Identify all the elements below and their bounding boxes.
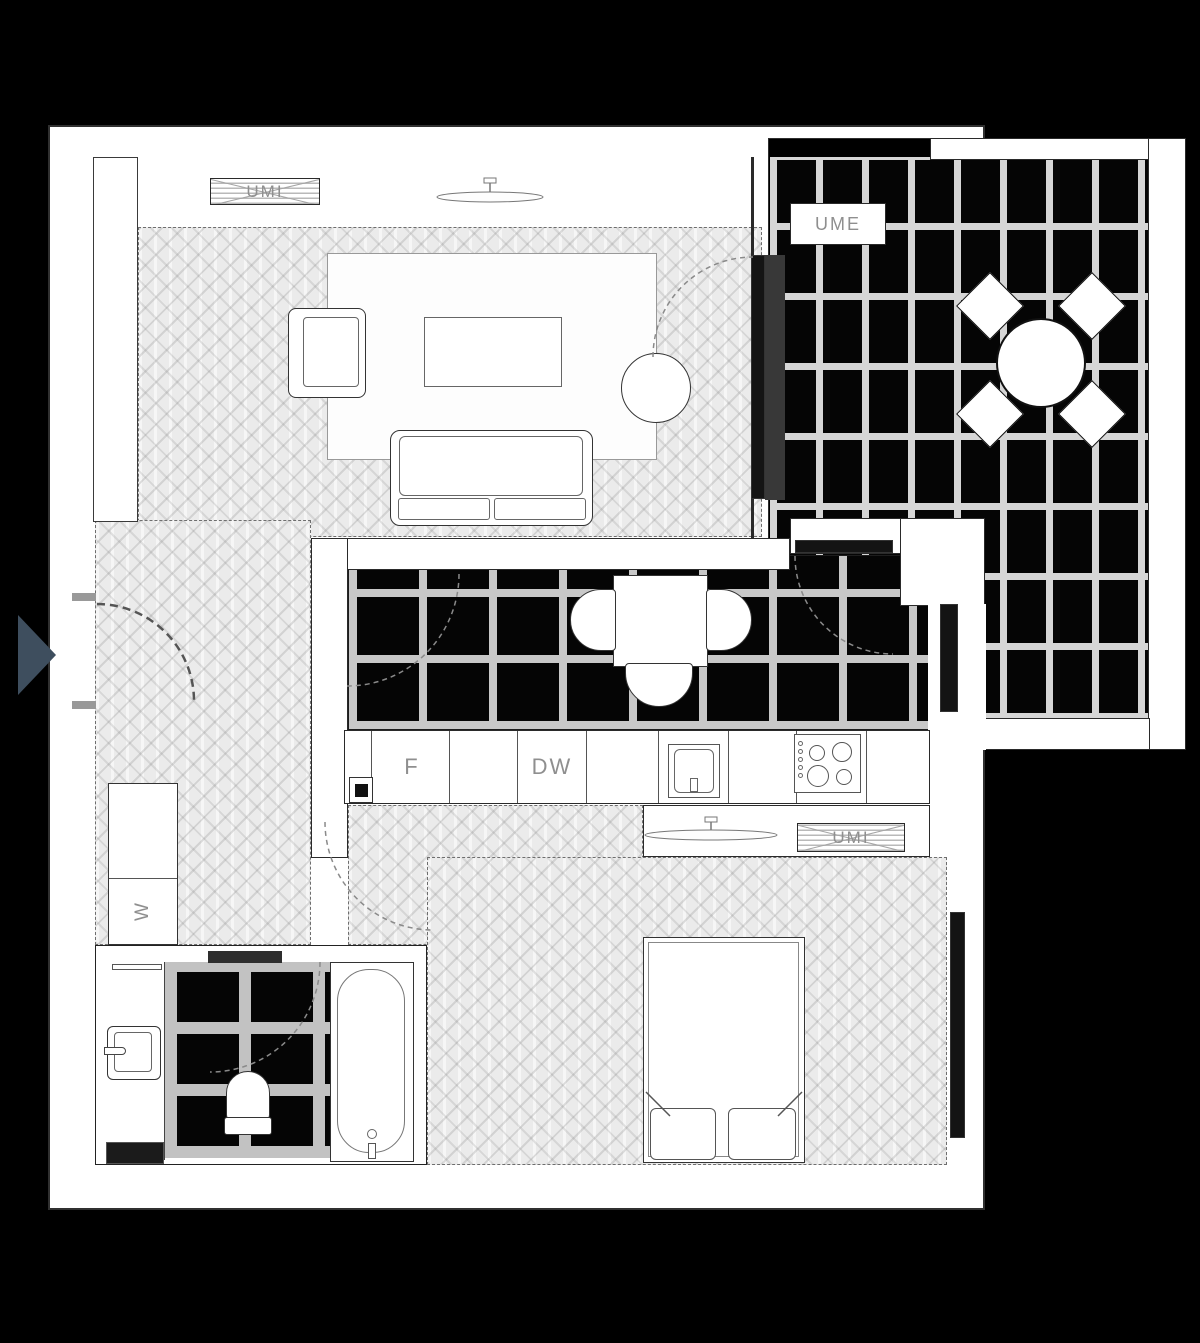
duvet-fold-left: [646, 1092, 670, 1116]
entry-door-swing: [97, 604, 194, 701]
kitchen-door-swing: [347, 574, 459, 686]
tv-living-icon: [437, 192, 543, 202]
duvet-fold-right: [778, 1092, 802, 1116]
annotation-overlay: [0, 0, 1200, 1343]
tv-living-bracket: [484, 178, 496, 183]
tv-bedroom-icon: [645, 830, 777, 840]
floor-plan-canvas: F DW: [0, 0, 1200, 1343]
bedroom-door-swing: [325, 822, 433, 930]
kitchen-balcony-door-swing: [795, 556, 893, 654]
tv-bedroom-bracket: [705, 817, 717, 822]
living-balcony-door-swing: [653, 257, 753, 357]
bathroom-door-swing: [210, 962, 320, 1072]
